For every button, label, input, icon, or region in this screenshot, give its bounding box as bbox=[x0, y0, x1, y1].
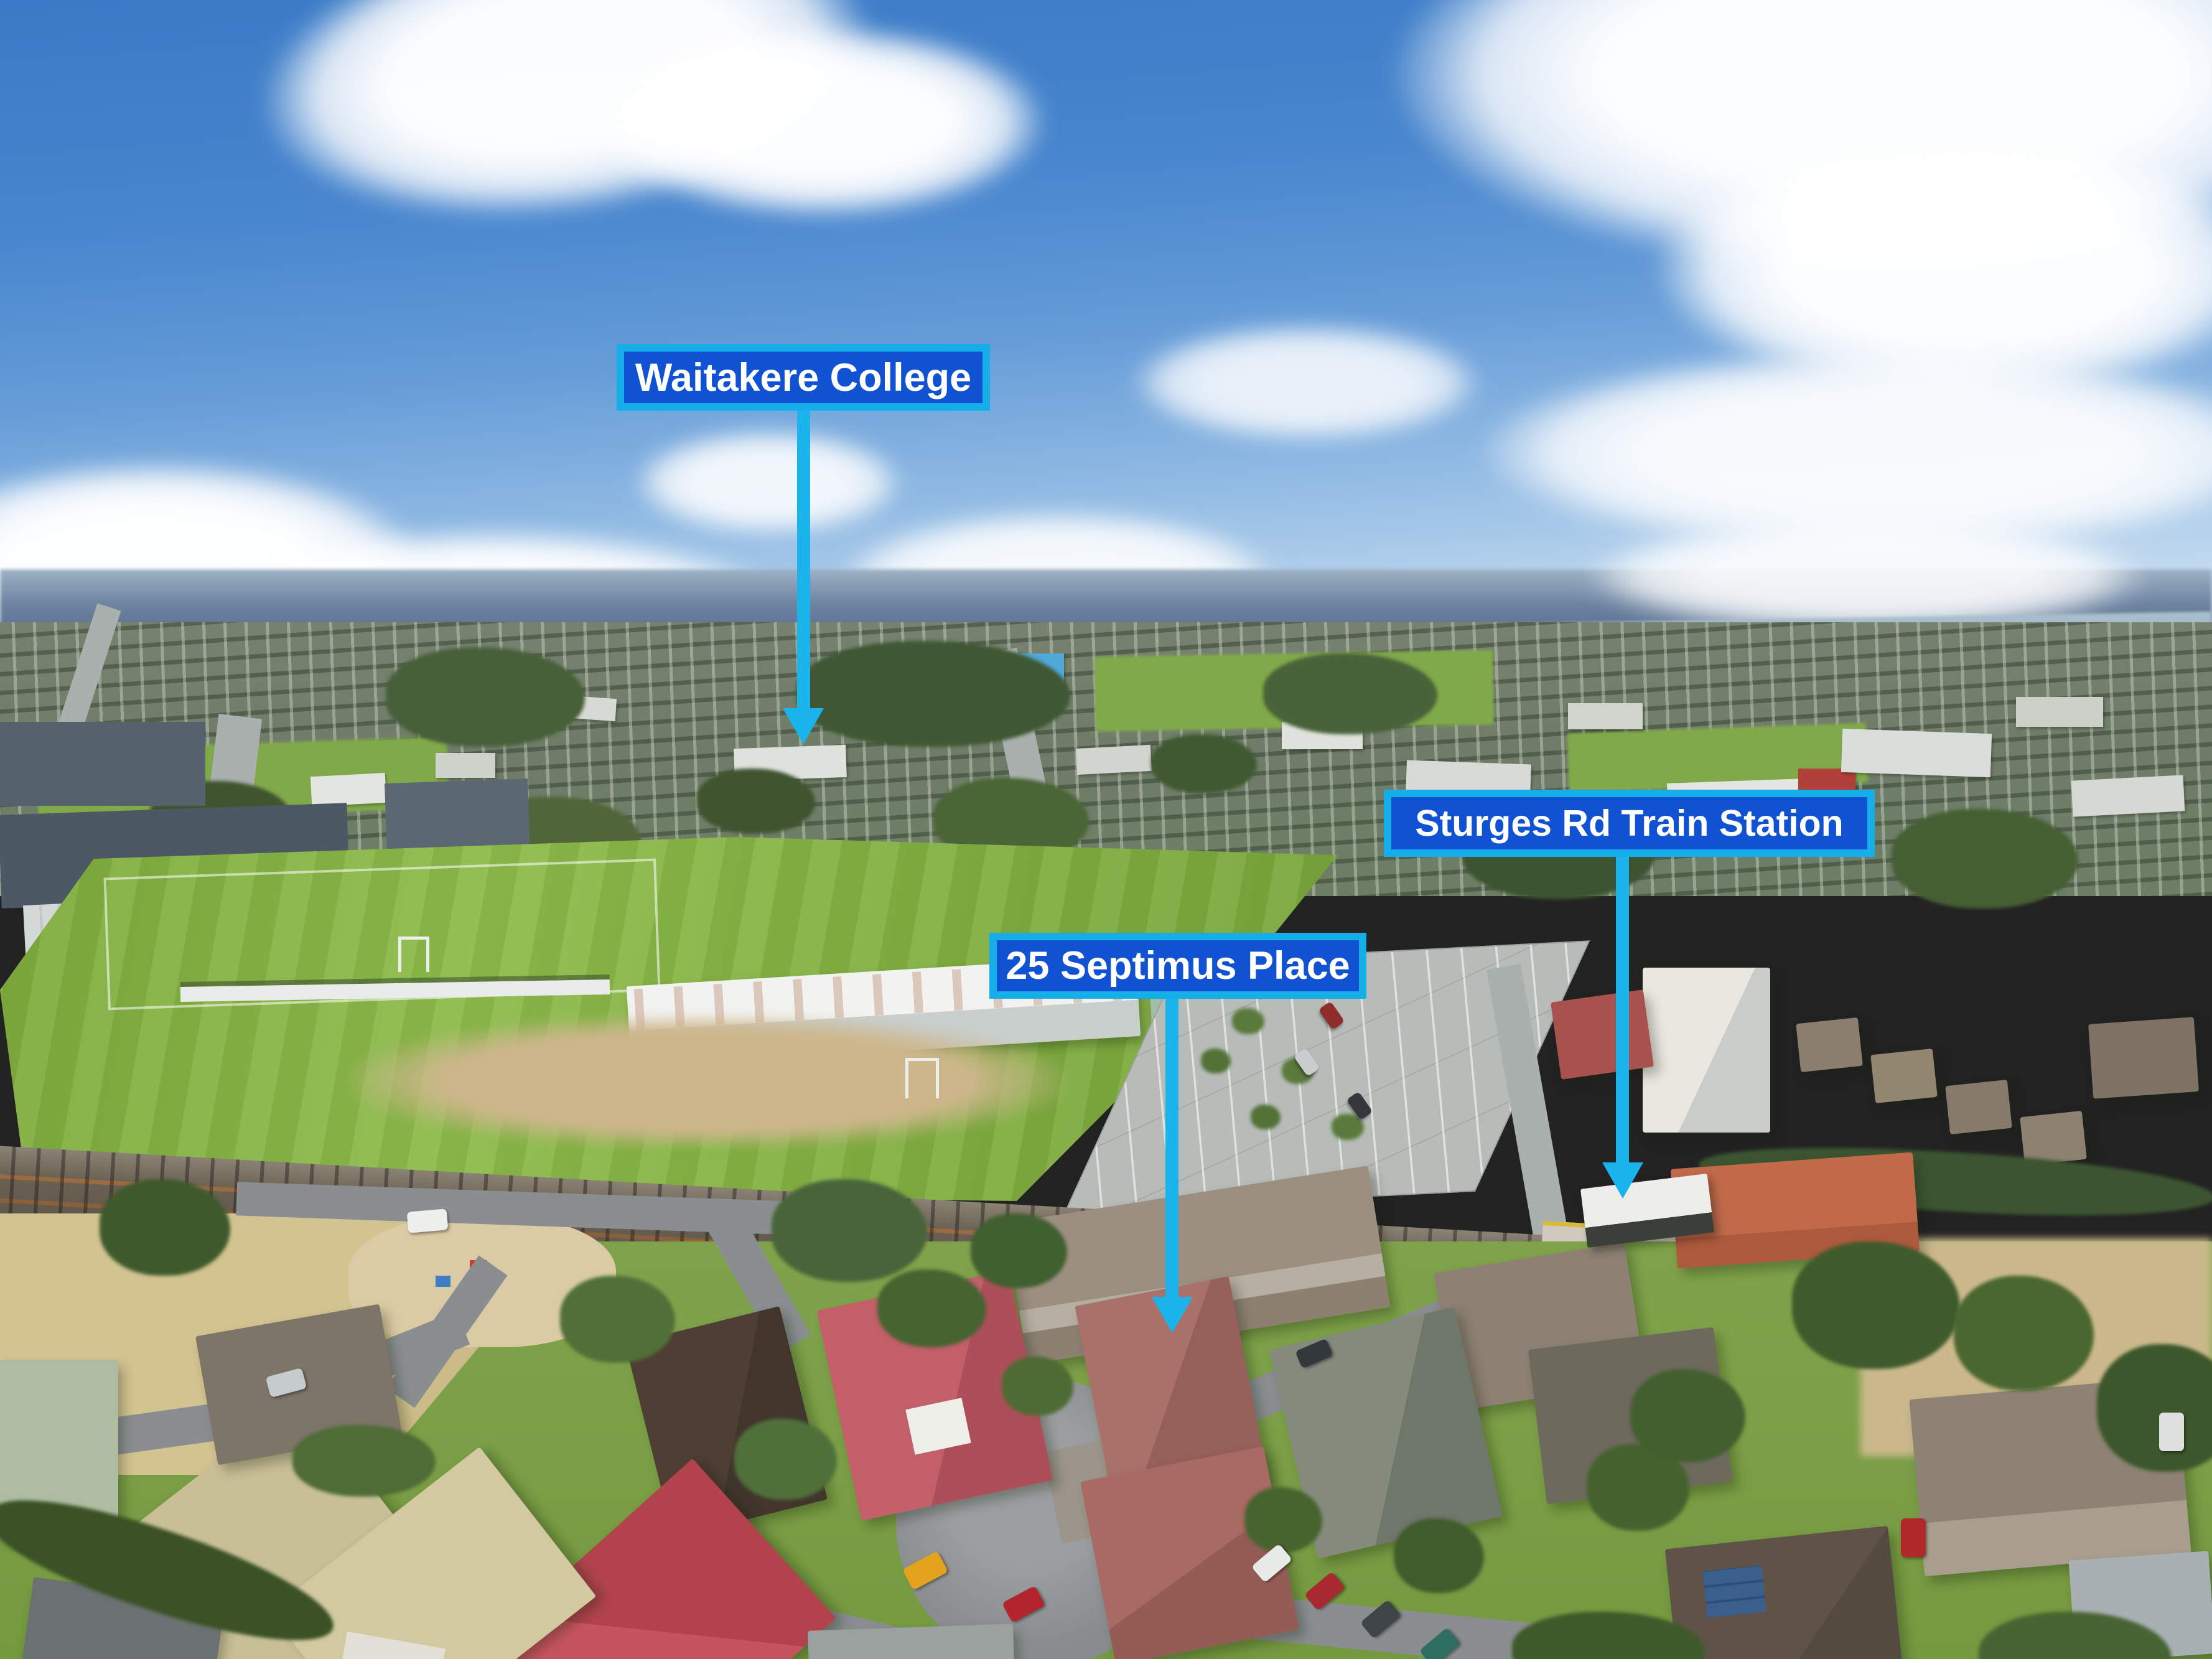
goal-post bbox=[905, 1058, 939, 1098]
arrow-waitakere-college bbox=[797, 409, 810, 708]
trees bbox=[1151, 734, 1257, 793]
white-ute bbox=[407, 1208, 449, 1233]
trees bbox=[697, 769, 815, 834]
brown-unit bbox=[2088, 1017, 2199, 1099]
tree bbox=[1954, 1276, 2094, 1391]
arrowhead-icon bbox=[1152, 1297, 1193, 1333]
solar-panels bbox=[1702, 1565, 1766, 1618]
trees bbox=[1892, 809, 2078, 909]
trees bbox=[386, 647, 585, 747]
callout-label: Sturges Rd Train Station bbox=[1415, 802, 1843, 844]
play-equipment bbox=[436, 1276, 450, 1287]
cloud bbox=[1132, 324, 1481, 442]
subject-house-wing bbox=[1080, 1446, 1299, 1659]
dirt-patch bbox=[348, 1014, 1064, 1148]
goal-post bbox=[398, 937, 429, 972]
parking-trees bbox=[1232, 1008, 1264, 1034]
parking-trees bbox=[1251, 1105, 1281, 1129]
trees bbox=[1263, 653, 1437, 734]
tree bbox=[772, 1179, 927, 1282]
trees bbox=[796, 641, 1070, 747]
tree bbox=[1792, 1241, 1960, 1369]
townhouse-row bbox=[2020, 1111, 2087, 1166]
callout-sturges-rd-train-station: Sturges Rd Train Station bbox=[1384, 790, 1875, 857]
house-tudor-solar bbox=[1665, 1526, 1906, 1659]
manor-house bbox=[1643, 968, 1770, 1133]
tree bbox=[100, 1179, 230, 1276]
callout-label: Waitakere College bbox=[635, 355, 971, 400]
arrow-25-septimus-place bbox=[1165, 998, 1178, 1297]
tree bbox=[2097, 1344, 2212, 1472]
arrowhead-icon bbox=[783, 708, 824, 744]
tree bbox=[877, 1269, 986, 1347]
building bbox=[436, 753, 495, 778]
tree bbox=[560, 1276, 675, 1363]
red-roof-house bbox=[1551, 989, 1654, 1080]
tree bbox=[1394, 1518, 1484, 1593]
arrow-sturges-rd-train-station bbox=[1616, 856, 1629, 1162]
townhouse-row bbox=[1945, 1080, 2012, 1134]
building bbox=[2016, 697, 2103, 727]
callout-label: 25 Septimus Place bbox=[1006, 943, 1350, 988]
tree bbox=[1244, 1487, 1322, 1553]
aerial-photo: Waitakere College Sturges Rd Train Stati… bbox=[0, 0, 2212, 1659]
townhouse-row bbox=[1870, 1049, 1938, 1103]
building bbox=[310, 773, 386, 806]
cloud bbox=[597, 25, 1045, 218]
warehouse bbox=[0, 722, 205, 806]
tree bbox=[734, 1419, 837, 1500]
white-car-right bbox=[2159, 1413, 2184, 1451]
red-car-right bbox=[1901, 1518, 1926, 1557]
townhouse-row bbox=[1796, 1017, 1863, 1072]
arrowhead-icon bbox=[1602, 1162, 1643, 1199]
tree bbox=[971, 1213, 1067, 1288]
building bbox=[2071, 775, 2185, 816]
building bbox=[1568, 703, 1643, 729]
building bbox=[1076, 745, 1152, 775]
hedge bbox=[292, 1425, 436, 1497]
parking-trees bbox=[1201, 1049, 1231, 1073]
callout-25-septimus-place: 25 Septimus Place bbox=[989, 933, 1366, 999]
tree bbox=[1630, 1369, 1745, 1462]
tree bbox=[1002, 1357, 1073, 1416]
callout-waitakere-college: Waitakere College bbox=[617, 344, 990, 411]
building bbox=[1841, 729, 1992, 777]
cloud bbox=[635, 429, 902, 535]
